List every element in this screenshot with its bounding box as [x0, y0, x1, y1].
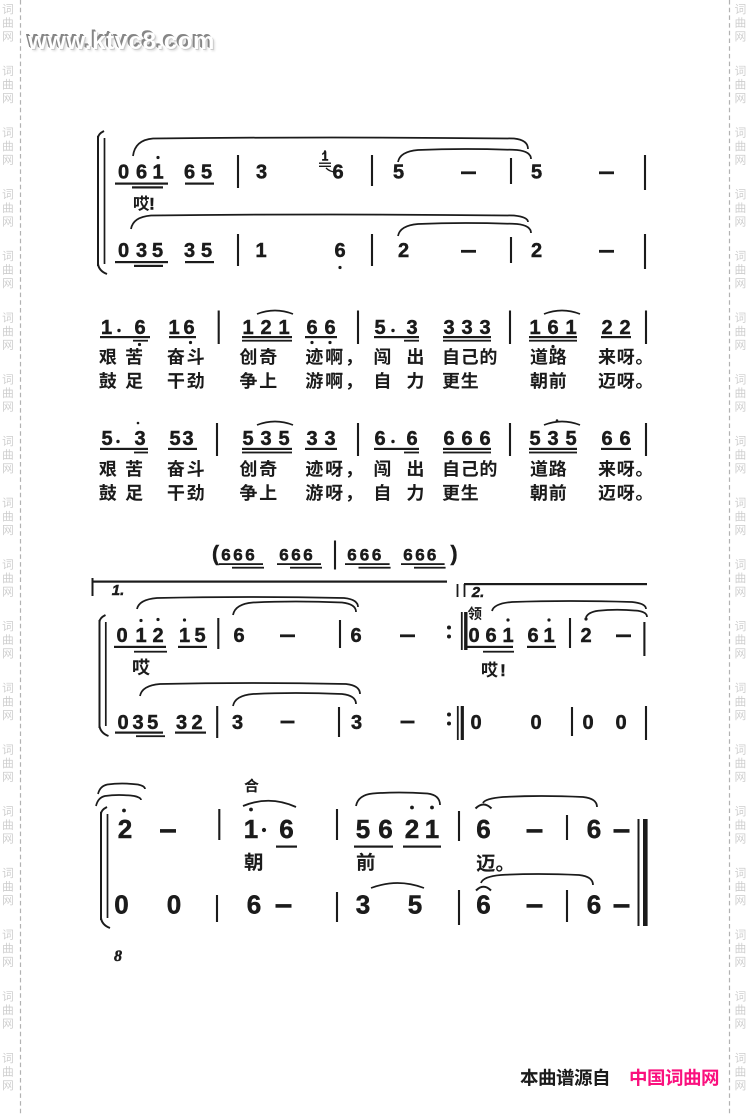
- svg-text:2: 2: [118, 814, 132, 844]
- svg-text:1: 1: [502, 625, 513, 647]
- svg-text:0: 0: [117, 712, 128, 734]
- svg-text:6: 6: [245, 546, 254, 565]
- svg-text:5: 5: [147, 712, 158, 734]
- svg-text:0: 0: [118, 162, 129, 184]
- svg-text:8: 8: [114, 948, 122, 965]
- svg-text:6: 6: [476, 814, 490, 844]
- svg-text:1: 1: [135, 625, 146, 647]
- svg-text:5: 5: [201, 240, 212, 262]
- svg-text:6: 6: [374, 428, 385, 450]
- svg-text:6: 6: [279, 814, 293, 844]
- svg-text:6: 6: [334, 240, 345, 262]
- svg-text:5: 5: [356, 814, 370, 844]
- svg-text:2: 2: [152, 625, 163, 647]
- svg-text:(: (: [212, 543, 219, 566]
- svg-text:5: 5: [393, 162, 404, 184]
- svg-text:5: 5: [278, 428, 289, 450]
- svg-text:1: 1: [179, 625, 190, 647]
- svg-text:6: 6: [527, 625, 538, 647]
- svg-text:6: 6: [360, 546, 369, 565]
- svg-text:0: 0: [116, 625, 127, 647]
- svg-text:6: 6: [587, 890, 601, 920]
- svg-text:1.: 1.: [112, 582, 125, 599]
- svg-text:1: 1: [529, 317, 540, 339]
- svg-text:3: 3: [306, 428, 317, 450]
- svg-text:6: 6: [619, 428, 630, 450]
- svg-text:3: 3: [479, 317, 490, 339]
- svg-text:6: 6: [547, 317, 558, 339]
- svg-text:5: 5: [565, 428, 576, 450]
- svg-text:5: 5: [531, 162, 542, 184]
- svg-text:6: 6: [291, 546, 300, 565]
- svg-text:3: 3: [406, 317, 417, 339]
- svg-text:1: 1: [255, 240, 266, 262]
- svg-text:0: 0: [470, 712, 481, 734]
- svg-text:2: 2: [191, 712, 202, 734]
- svg-text:2: 2: [531, 240, 542, 262]
- svg-text:0: 0: [615, 712, 626, 734]
- svg-text:3: 3: [132, 712, 143, 734]
- svg-text:5: 5: [152, 240, 163, 262]
- svg-text:3: 3: [182, 428, 193, 450]
- svg-text:6: 6: [184, 162, 195, 184]
- svg-text:1: 1: [101, 317, 112, 339]
- svg-text:3: 3: [184, 240, 195, 262]
- svg-text:3: 3: [256, 162, 267, 184]
- svg-text:6: 6: [233, 546, 242, 565]
- svg-text:6: 6: [378, 814, 392, 844]
- svg-text:1: 1: [244, 814, 258, 844]
- svg-text:6: 6: [485, 625, 496, 647]
- svg-text:1: 1: [278, 317, 289, 339]
- svg-text:5: 5: [201, 162, 212, 184]
- svg-text:6: 6: [601, 428, 612, 450]
- svg-text:3: 3: [443, 317, 454, 339]
- svg-text:1: 1: [152, 162, 163, 184]
- svg-text:3: 3: [260, 428, 271, 450]
- svg-text:5: 5: [529, 428, 540, 450]
- svg-text:6: 6: [247, 890, 261, 920]
- svg-text:6: 6: [350, 625, 361, 647]
- svg-text:5: 5: [374, 317, 385, 339]
- svg-text:3: 3: [356, 890, 370, 920]
- svg-text:1: 1: [543, 625, 554, 647]
- svg-text:1: 1: [565, 317, 576, 339]
- svg-text:3: 3: [136, 240, 147, 262]
- svg-text:5: 5: [101, 428, 112, 450]
- svg-text:5: 5: [169, 428, 180, 450]
- svg-text:6: 6: [279, 546, 288, 565]
- svg-text:0: 0: [114, 890, 128, 920]
- svg-text:0: 0: [167, 890, 181, 920]
- svg-text:6: 6: [233, 625, 244, 647]
- svg-text:3: 3: [134, 428, 145, 450]
- svg-text:6: 6: [303, 546, 312, 565]
- svg-text:0: 0: [530, 712, 541, 734]
- svg-text:6: 6: [324, 317, 335, 339]
- svg-text:2.: 2.: [471, 584, 485, 601]
- svg-text:6: 6: [183, 317, 194, 339]
- svg-text:6: 6: [306, 317, 317, 339]
- svg-text:6: 6: [476, 890, 490, 920]
- svg-text:3: 3: [547, 428, 558, 450]
- svg-text:1: 1: [168, 317, 179, 339]
- svg-text:2: 2: [601, 317, 612, 339]
- svg-text:): ): [451, 543, 458, 566]
- svg-text:6: 6: [134, 317, 145, 339]
- svg-text:0: 0: [118, 240, 129, 262]
- svg-text:6: 6: [479, 428, 490, 450]
- svg-text:6: 6: [415, 546, 424, 565]
- svg-text:3: 3: [176, 712, 187, 734]
- svg-text:0: 0: [582, 712, 593, 734]
- svg-text:6: 6: [427, 546, 436, 565]
- svg-text:3: 3: [324, 428, 335, 450]
- svg-text:3: 3: [351, 712, 362, 734]
- svg-text:2: 2: [580, 625, 591, 647]
- svg-text:6: 6: [221, 546, 230, 565]
- svg-text:6: 6: [372, 546, 381, 565]
- svg-text:6: 6: [136, 162, 147, 184]
- svg-text:6: 6: [406, 428, 417, 450]
- svg-text:6: 6: [403, 546, 412, 565]
- svg-text:3: 3: [461, 317, 472, 339]
- svg-text:6: 6: [332, 162, 343, 184]
- svg-text:2: 2: [619, 317, 630, 339]
- svg-text:3: 3: [232, 712, 243, 734]
- svg-text:6: 6: [587, 814, 601, 844]
- svg-text:6: 6: [347, 546, 356, 565]
- svg-text:5: 5: [194, 625, 205, 647]
- svg-text:1: 1: [425, 814, 439, 844]
- svg-text:2: 2: [398, 240, 409, 262]
- svg-text:2: 2: [260, 317, 271, 339]
- svg-text:6: 6: [461, 428, 472, 450]
- svg-text:6: 6: [443, 428, 454, 450]
- svg-text:5: 5: [408, 890, 422, 920]
- svg-text:5: 5: [242, 428, 253, 450]
- svg-text:!: !: [149, 195, 155, 214]
- svg-text:!: !: [500, 661, 506, 680]
- svg-text:0: 0: [468, 625, 479, 647]
- svg-text:1: 1: [242, 317, 253, 339]
- svg-text:2: 2: [405, 814, 419, 844]
